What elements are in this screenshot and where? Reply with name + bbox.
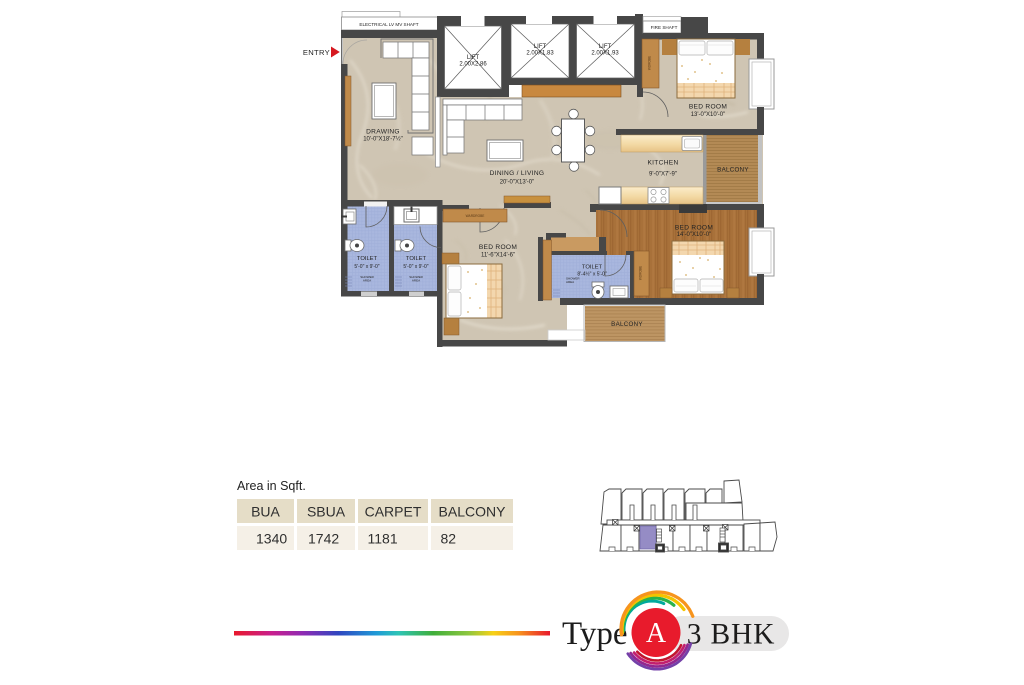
svg-text:BUA: BUA <box>251 504 280 520</box>
svg-text:3 BHK: 3 BHK <box>687 619 775 651</box>
svg-text:AREA: AREA <box>412 279 420 283</box>
svg-text:BED ROOM: BED ROOM <box>479 244 517 251</box>
svg-text:DINING / LIVING: DINING / LIVING <box>490 170 545 177</box>
svg-text:TOILET: TOILET <box>357 256 378 262</box>
svg-text:LIFT: LIFT <box>467 55 480 61</box>
svg-text:BALCONY: BALCONY <box>439 504 507 520</box>
svg-text:1340: 1340 <box>256 531 287 547</box>
svg-text:82: 82 <box>441 531 457 547</box>
svg-text:ELECTRICAL LV MV SHAFT: ELECTRICAL LV MV SHAFT <box>359 22 418 27</box>
svg-text:8'-4½" x 5'-0": 8'-4½" x 5'-0" <box>577 271 607 278</box>
svg-text:1181: 1181 <box>368 531 398 547</box>
svg-text:WARDROBE: WARDROBE <box>466 214 485 218</box>
svg-text:AREA: AREA <box>363 279 371 283</box>
svg-text:2.00X2.86: 2.00X2.86 <box>459 62 487 68</box>
svg-text:DRAWING: DRAWING <box>366 129 400 136</box>
svg-text:ENTRY: ENTRY <box>303 48 330 57</box>
svg-text:TOILET: TOILET <box>406 256 427 262</box>
svg-text:10'-0"X18'-7½": 10'-0"X18'-7½" <box>363 136 403 143</box>
svg-text:LIFT: LIFT <box>534 44 547 50</box>
svg-text:A: A <box>646 618 667 649</box>
svg-text:5'-0" x 9'-0": 5'-0" x 9'-0" <box>354 264 379 270</box>
svg-text:9'-0"X7'-9": 9'-0"X7'-9" <box>649 172 677 178</box>
svg-text:5'-0" x 9'-0": 5'-0" x 9'-0" <box>403 264 428 270</box>
svg-text:TOILET: TOILET <box>582 265 603 271</box>
svg-text:AREA: AREA <box>566 280 574 284</box>
svg-text:20'-0"X13'-0": 20'-0"X13'-0" <box>500 180 535 186</box>
svg-text:KITCHEN: KITCHEN <box>647 160 678 167</box>
svg-text:BALCONY: BALCONY <box>717 167 749 174</box>
svg-text:CARPET: CARPET <box>365 504 422 520</box>
svg-text:BED ROOM: BED ROOM <box>689 104 727 111</box>
svg-text:13'-0"X10'-0": 13'-0"X10'-0" <box>691 112 726 118</box>
svg-text:SBUA: SBUA <box>307 504 346 520</box>
svg-text:1742: 1742 <box>308 531 339 547</box>
svg-text:14'-0"X10'-0": 14'-0"X10'-0" <box>677 232 712 238</box>
svg-text:2.00X1.93: 2.00X1.93 <box>591 51 619 57</box>
svg-text:WDROBE: WDROBE <box>648 56 652 70</box>
svg-text:WDROBE: WDROBE <box>639 266 643 280</box>
svg-text:2.00X1.83: 2.00X1.83 <box>526 51 554 57</box>
svg-text:Type: Type <box>562 616 628 652</box>
svg-text:BALCONY: BALCONY <box>611 321 643 328</box>
svg-text:LIFT: LIFT <box>599 44 612 50</box>
svg-text:Area in Sqft.: Area in Sqft. <box>237 479 306 493</box>
svg-text:11'-6"X14'-6": 11'-6"X14'-6" <box>481 253 515 259</box>
svg-text:FIRE SHAFT: FIRE SHAFT <box>651 25 678 30</box>
svg-text:BED ROOM: BED ROOM <box>675 225 713 232</box>
